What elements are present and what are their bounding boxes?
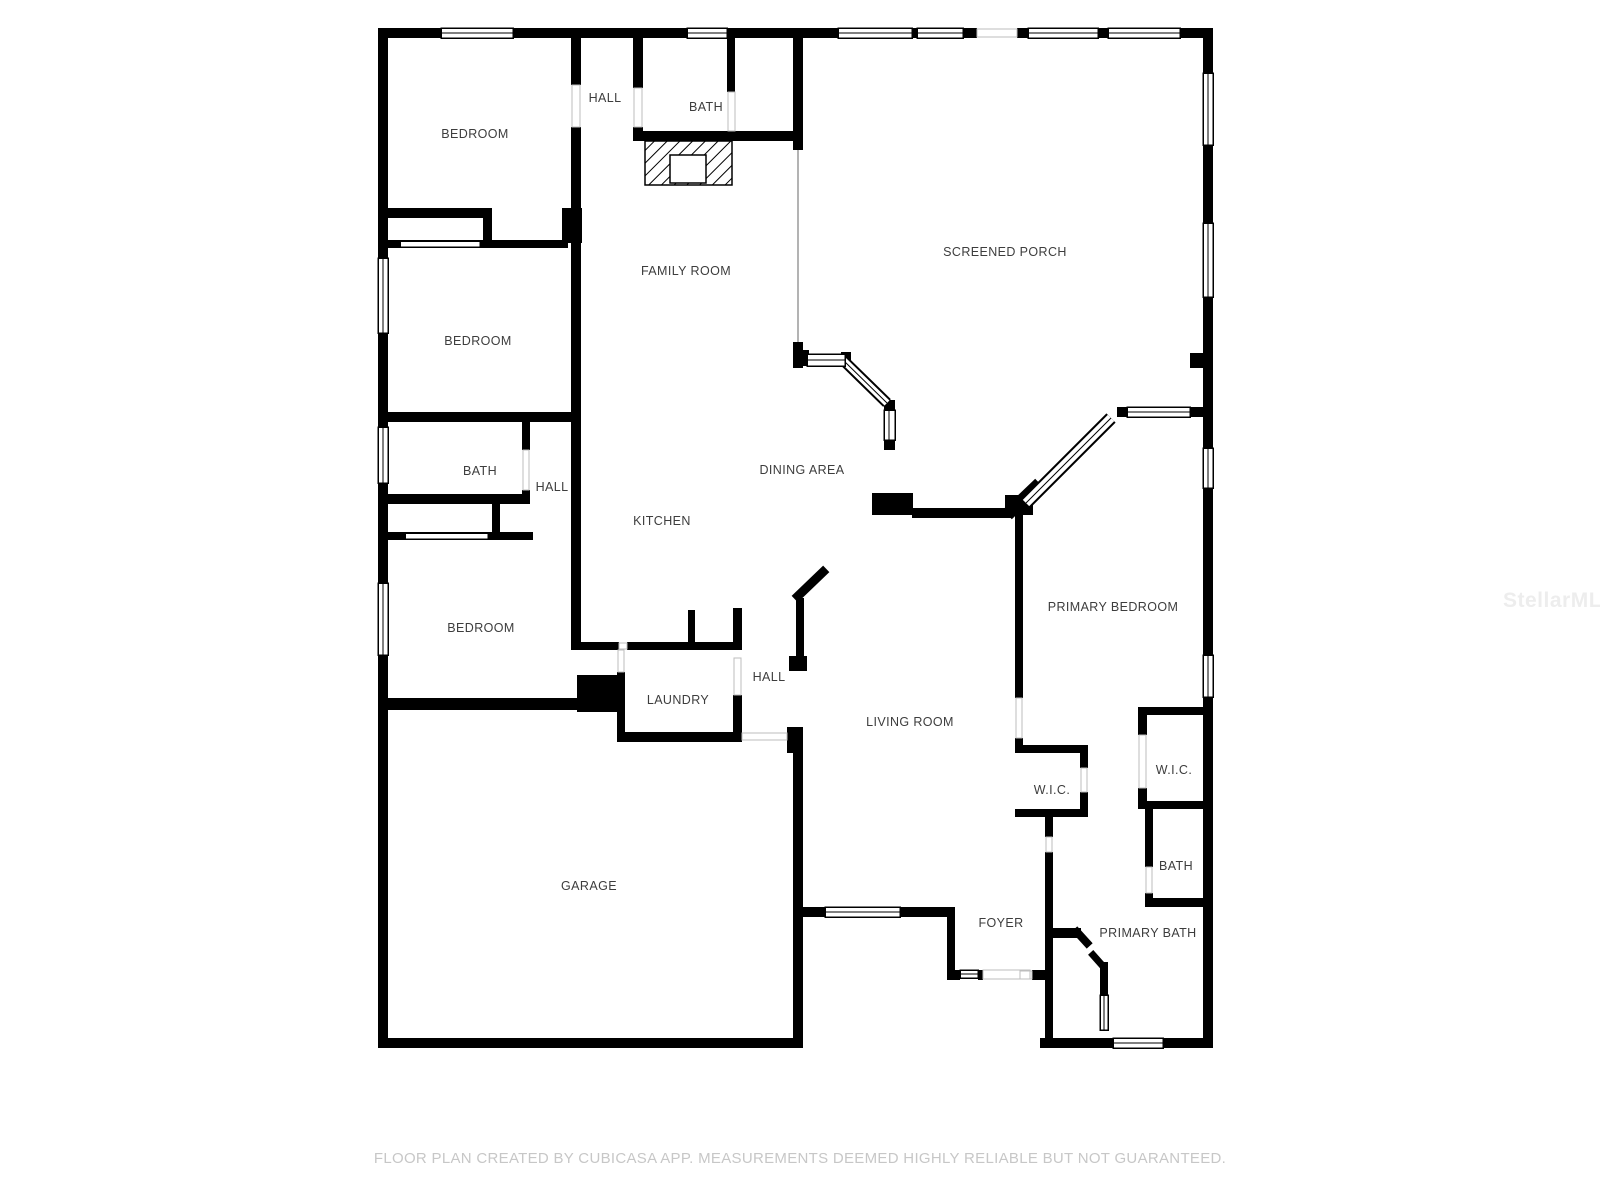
door-openings bbox=[523, 29, 1152, 979]
room-label-hall-2: HALL bbox=[536, 480, 569, 494]
floor-plan-drawing bbox=[0, 0, 1600, 1200]
room-label-foyer: FOYER bbox=[978, 916, 1023, 930]
walls bbox=[378, 28, 1213, 1048]
room-label-laundry: LAUNDRY bbox=[647, 693, 709, 707]
room-label-bedroom-2: BEDROOM bbox=[444, 334, 511, 348]
room-label-bedroom-3: BEDROOM bbox=[447, 621, 514, 635]
footer-disclaimer: FLOOR PLAN CREATED BY CUBICASA APP. MEAS… bbox=[374, 1150, 1226, 1167]
diagonal-windows bbox=[843, 360, 1111, 503]
room-label-bath-3: BATH bbox=[1159, 859, 1193, 873]
floor-plan-page: BEDROOM HALL BATH FAMILY ROOM SCREENED P… bbox=[0, 0, 1600, 1200]
room-label-garage: GARAGE bbox=[561, 879, 617, 893]
room-label-hall-3: HALL bbox=[753, 670, 786, 684]
room-label-wic-2: W.I.C. bbox=[1156, 763, 1192, 777]
room-label-hall-1: HALL bbox=[589, 91, 622, 105]
room-label-wic-1: W.I.C. bbox=[1034, 783, 1070, 797]
stellar-mls-watermark: StellarMLS bbox=[1503, 589, 1600, 613]
room-label-living-room: LIVING ROOM bbox=[866, 715, 954, 729]
room-label-kitchen: KITCHEN bbox=[633, 514, 691, 528]
room-label-family-room: FAMILY ROOM bbox=[641, 264, 731, 278]
room-label-primary-bath: PRIMARY BATH bbox=[1099, 926, 1196, 940]
fireplace-icon bbox=[645, 141, 732, 185]
room-label-bath-1: BATH bbox=[689, 100, 723, 114]
room-label-bath-2: BATH bbox=[463, 464, 497, 478]
room-label-bedroom-1: BEDROOM bbox=[441, 127, 508, 141]
room-label-screened-porch: SCREENED PORCH bbox=[943, 245, 1067, 259]
room-label-primary-bedroom: PRIMARY BEDROOM bbox=[1048, 600, 1179, 614]
room-label-dining-area: DINING AREA bbox=[760, 463, 845, 477]
